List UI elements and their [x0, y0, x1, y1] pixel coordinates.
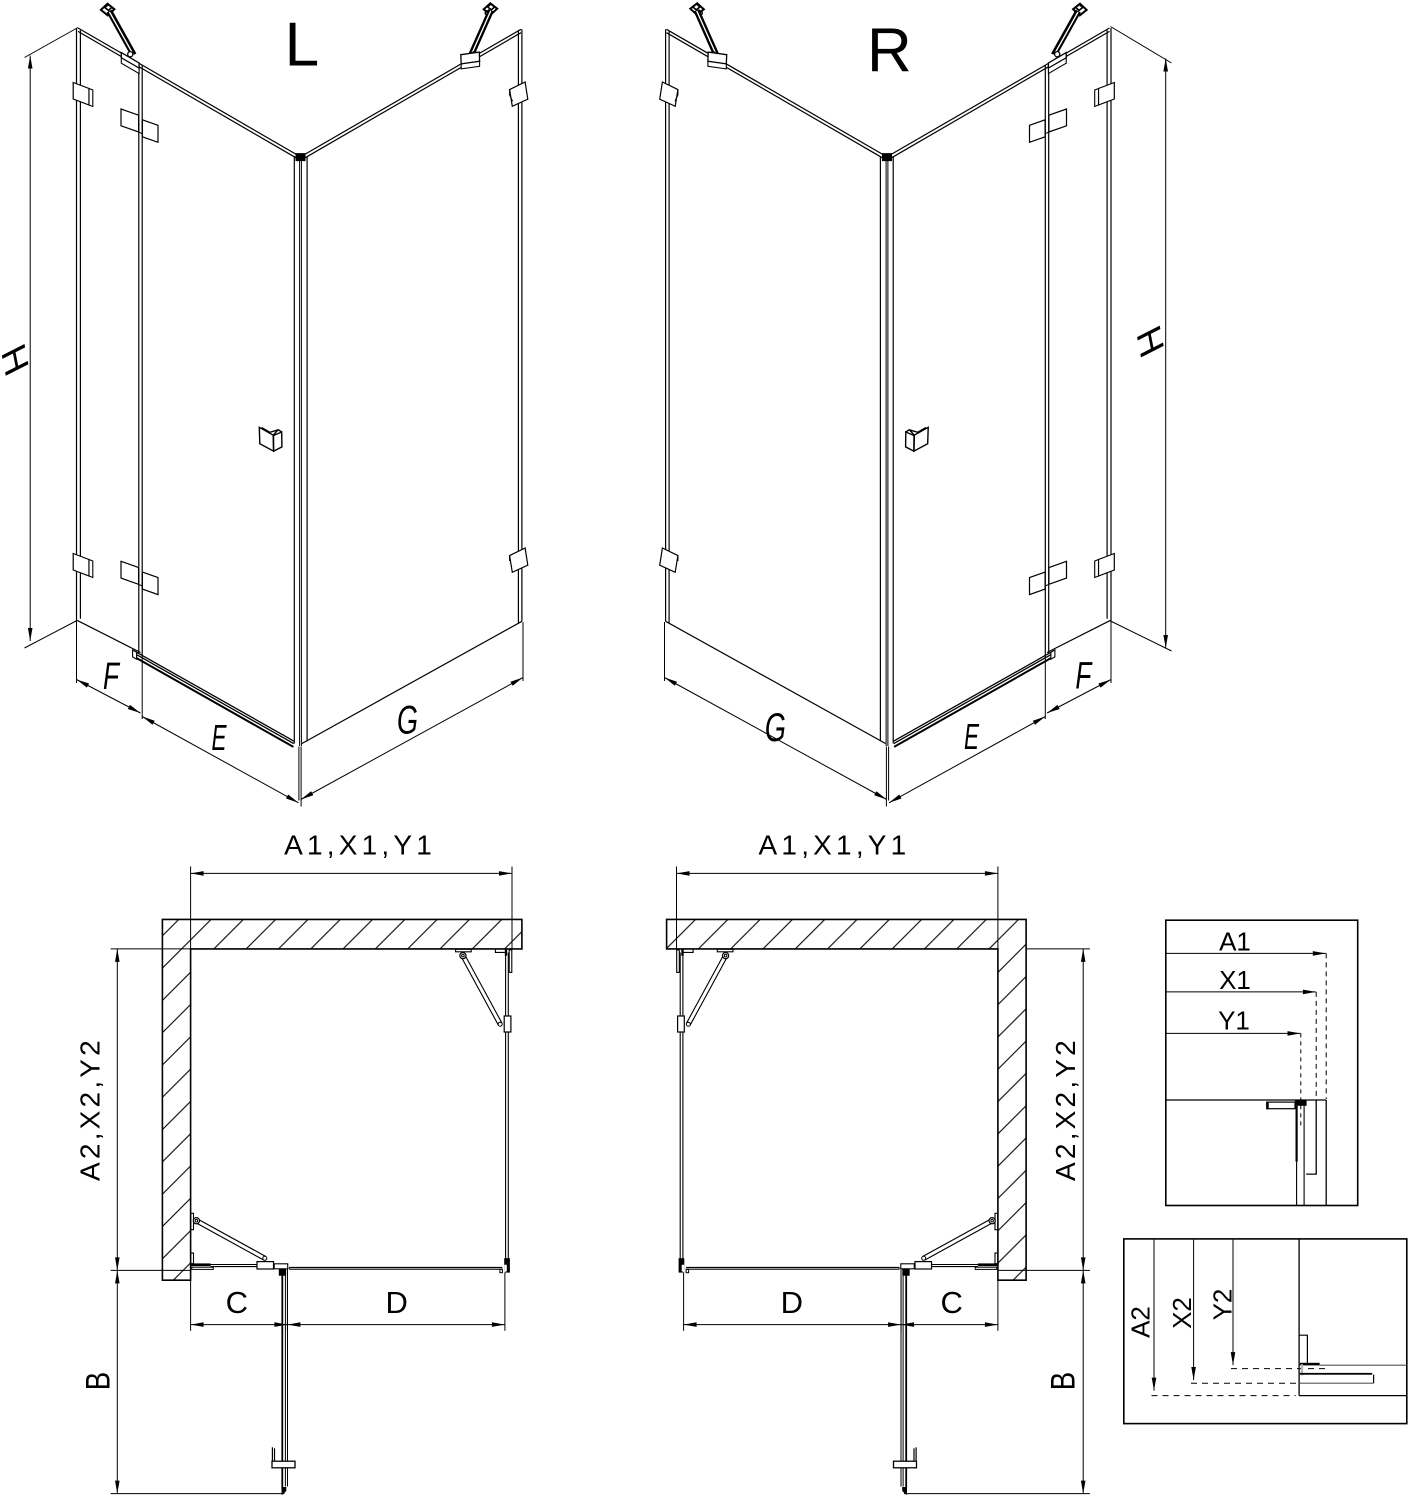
svg-text:G: G	[765, 706, 786, 750]
svg-text:A1,X1,Y1: A1,X1,Y1	[759, 830, 911, 861]
svg-text:D: D	[781, 1285, 803, 1320]
svg-text:C: C	[941, 1285, 963, 1320]
svg-text:E: E	[212, 717, 228, 758]
svg-text:R: R	[867, 17, 912, 86]
svg-text:A2: A2	[1125, 1306, 1155, 1338]
svg-text:B: B	[1045, 1372, 1083, 1391]
svg-text:C: C	[226, 1285, 248, 1320]
svg-text:E: E	[964, 716, 980, 757]
svg-text:A2,X2,Y2: A2,X2,Y2	[1050, 1037, 1081, 1181]
svg-text:F: F	[103, 656, 120, 698]
svg-text:A1: A1	[1219, 927, 1251, 957]
svg-text:A1,X1,Y1: A1,X1,Y1	[284, 830, 436, 861]
svg-text:A2,X2,Y2: A2,X2,Y2	[75, 1037, 106, 1181]
svg-text:Y1: Y1	[1218, 1006, 1250, 1036]
svg-text:G: G	[397, 699, 418, 743]
svg-text:X2: X2	[1167, 1297, 1197, 1329]
svg-text:Y2: Y2	[1207, 1289, 1237, 1321]
svg-text:B: B	[80, 1372, 118, 1391]
svg-text:L: L	[285, 11, 319, 80]
svg-text:F: F	[1075, 656, 1092, 698]
svg-text:D: D	[386, 1285, 408, 1320]
svg-text:X1: X1	[1219, 965, 1251, 995]
